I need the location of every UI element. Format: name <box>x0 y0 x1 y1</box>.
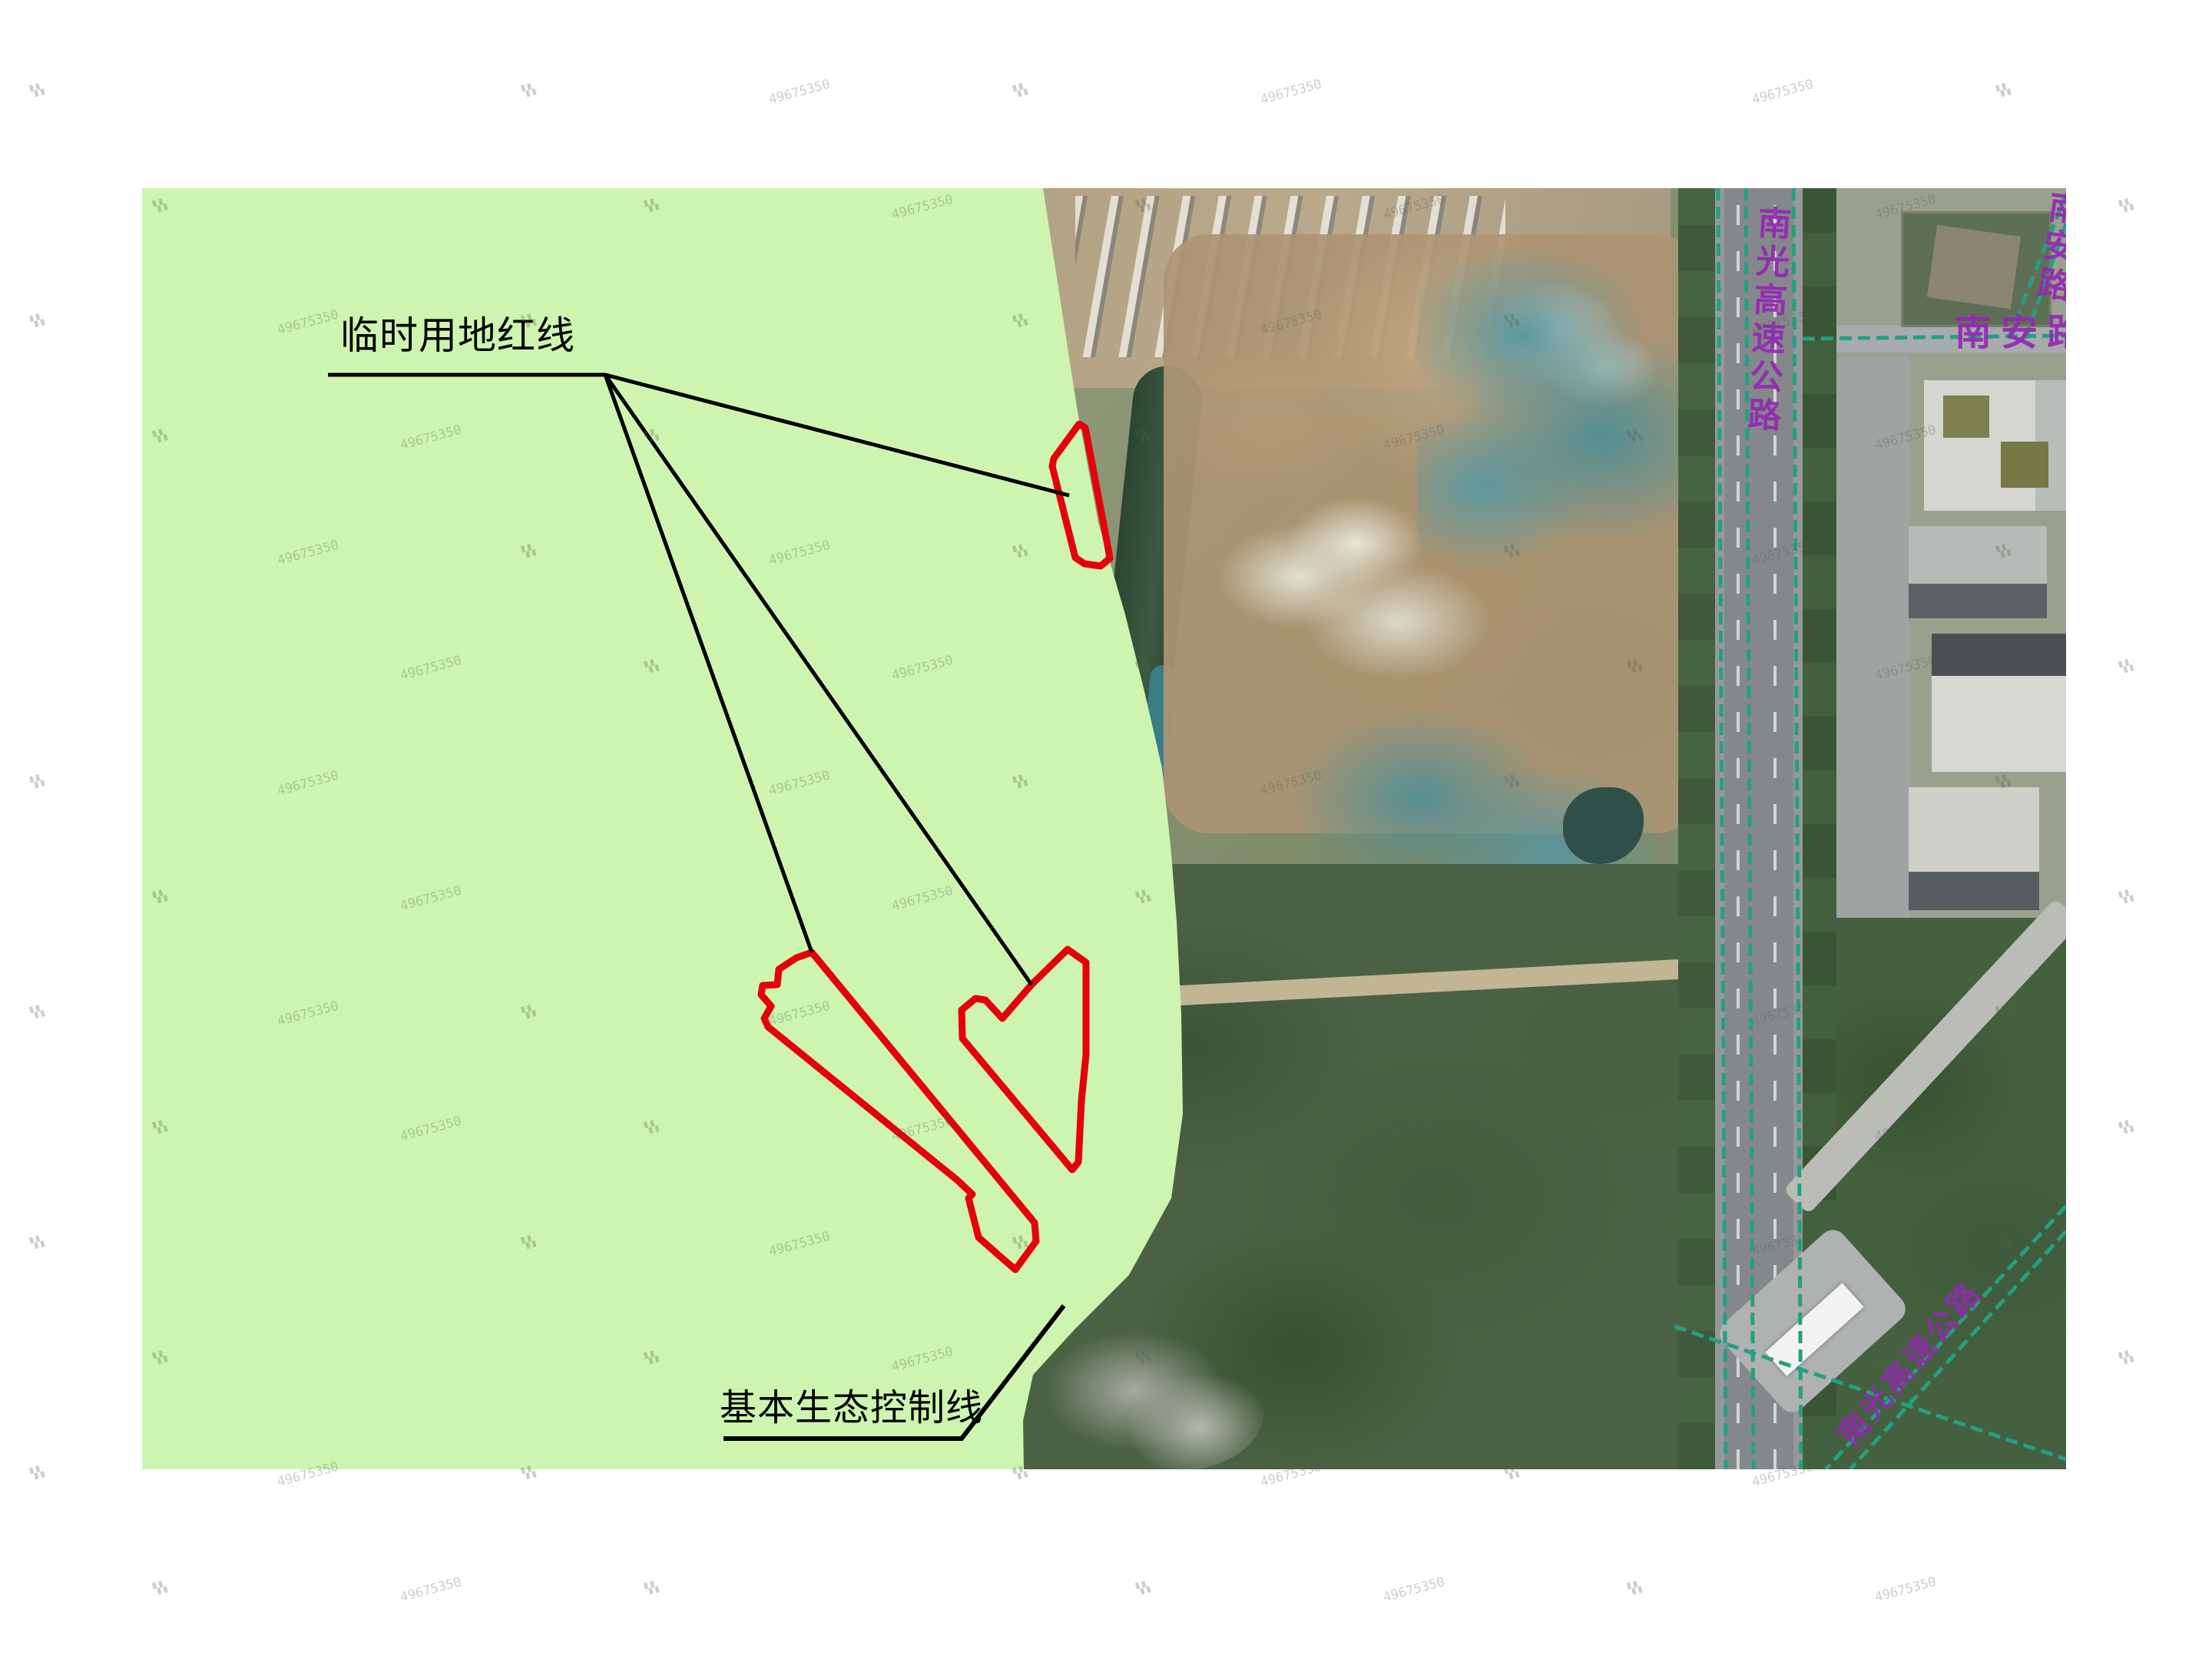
page: { "map": { "labels": { "redline": "临时用地红… <box>0 0 2212 1659</box>
watermark-glyph: ▚▚ <box>644 1581 659 1596</box>
watermark-glyph: ▚▚ <box>29 313 45 329</box>
watermark-glyph: ▚▚ <box>29 774 45 790</box>
map-canvas: 临时用地红线 基本生态控制线 南光高速公路 南安路 南安路 南光高速公路 <box>142 188 2066 1469</box>
redline-label: 临时用地红线 <box>340 305 575 360</box>
watermark-number: 49675350 <box>767 77 832 108</box>
watermark-glyph: ▚▚ <box>1012 83 1028 98</box>
watermark-number: 49675350 <box>1873 1575 1938 1606</box>
teal-control-lines <box>1674 188 2066 1469</box>
watermark-glyph: ▚▚ <box>29 83 45 98</box>
watermark-glyph: ▚▚ <box>29 1235 45 1250</box>
watermark-glyph: ▚▚ <box>2118 198 2134 214</box>
watermark-glyph: ▚▚ <box>152 1581 167 1596</box>
watermark-glyph: ▚▚ <box>1135 1581 1151 1596</box>
watermark-glyph: ▚▚ <box>2118 889 2134 905</box>
watermark-glyph: ▚▚ <box>2118 1350 2134 1366</box>
watermark-glyph: ▚▚ <box>521 83 536 98</box>
watermark-number: 49675350 <box>1750 77 1815 108</box>
eco-line-label: 基本生态控制线 <box>720 1377 983 1431</box>
watermark-glyph: ▚▚ <box>1995 83 2011 98</box>
watermark-glyph: ▚▚ <box>29 1005 45 1020</box>
watermark-glyph: ▚▚ <box>1627 1581 1642 1596</box>
watermark-number: 49675350 <box>1382 1575 1446 1606</box>
road-label-nanan: 南安路 <box>1955 302 2066 356</box>
watermark-glyph: ▚▚ <box>2118 659 2134 674</box>
watermark-number: 49675350 <box>1259 77 1323 108</box>
watermark-glyph: ▚▚ <box>2118 1120 2134 1135</box>
eco-green-zone <box>142 188 1183 1469</box>
watermark-number: 49675350 <box>399 1575 463 1606</box>
watermark-glyph: ▚▚ <box>29 1465 45 1481</box>
